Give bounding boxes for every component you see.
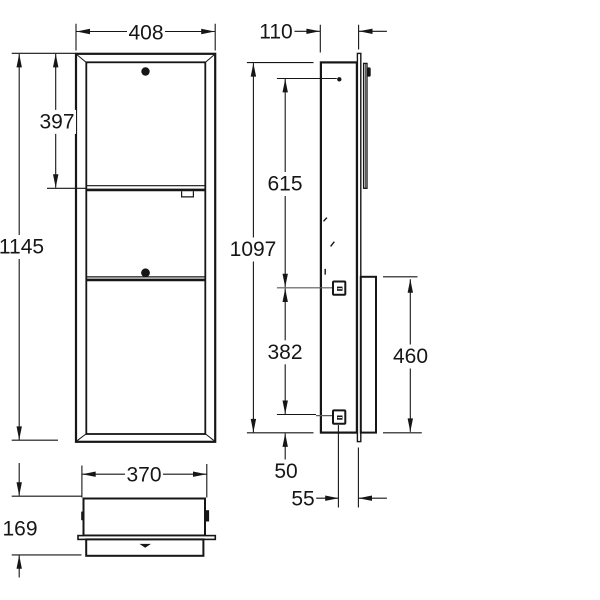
door-handle-notch xyxy=(182,191,194,197)
fixing-hole-ticks xyxy=(324,218,335,275)
upper-fixing-dot xyxy=(337,77,341,81)
upper-lock-dot xyxy=(141,67,149,75)
bottom-door-front xyxy=(86,539,203,555)
dim-label-fixing-spacing: 382 xyxy=(267,341,302,364)
mounting-clip-icon xyxy=(333,410,345,423)
front-outer-frame xyxy=(76,54,215,442)
lower-lock-dot xyxy=(141,268,150,277)
technical-drawing-page: 408 397 1145 370 169 110 615 1097 382 46… xyxy=(0,0,600,600)
dim-label-body-height: 1097 xyxy=(230,238,277,261)
dim-label-depth: 110 xyxy=(259,21,292,44)
left-clip-icon xyxy=(81,512,84,521)
technical-drawing: 408 397 1145 370 169 110 615 1097 382 46… xyxy=(0,0,600,600)
lock-knob-icon xyxy=(367,67,371,76)
side-body-box xyxy=(321,62,357,432)
dim-label-total-height: 1145 xyxy=(0,236,44,259)
dim-label-upper-door-height: 397 xyxy=(39,110,74,133)
bottom-view xyxy=(78,499,215,556)
side-view xyxy=(277,53,376,441)
front-view xyxy=(76,54,215,442)
dim-label-upper-fixing-offset: 615 xyxy=(267,173,302,196)
door-divider-thick-lines xyxy=(86,190,205,280)
extension-lines-side xyxy=(247,25,422,508)
right-clip-icon xyxy=(205,510,209,521)
side-bin-box xyxy=(361,277,376,433)
dim-label-front-width: 408 xyxy=(128,21,163,44)
dim-label-bottom-fixing-offset: 50 xyxy=(274,460,297,483)
mounting-clip-icon xyxy=(333,282,345,295)
extension-lines-front xyxy=(12,24,216,555)
bottom-body-box xyxy=(84,499,206,536)
dim-label-inner-width: 370 xyxy=(126,464,161,487)
door-divider-thin-lines xyxy=(86,186,205,277)
frame-miter-lines xyxy=(77,55,214,441)
dim-label-front-protrusion: 55 xyxy=(291,488,314,511)
front-inner-frame xyxy=(86,62,205,434)
dim-label-total-depth: 169 xyxy=(2,517,37,540)
dim-label-bin-box-height: 460 xyxy=(393,345,428,368)
dimension-lines-side xyxy=(253,31,410,498)
